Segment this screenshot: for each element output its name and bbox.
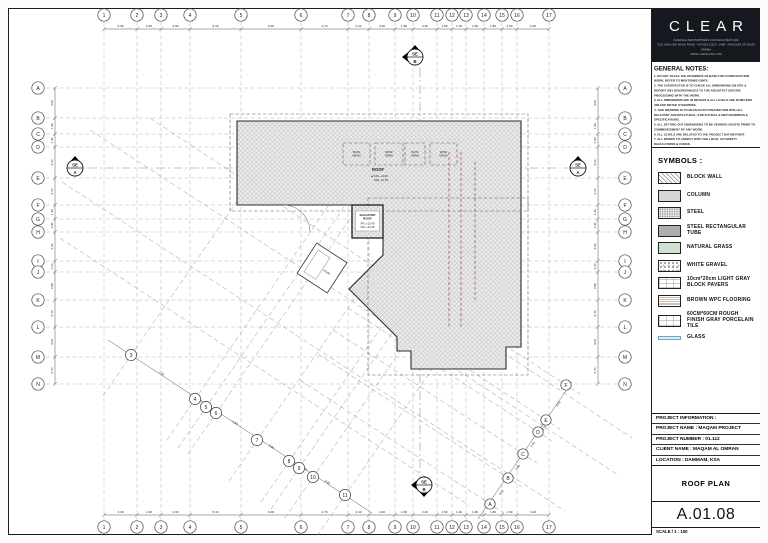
diagonal-grid-bubble: 4 — [189, 393, 200, 404]
svg-text:2.70: 2.70 — [50, 310, 54, 316]
svg-text:SE: SE — [412, 51, 418, 56]
column-grid-bubble-bottom: 15 — [496, 521, 508, 533]
block-wall-swatch — [658, 172, 681, 184]
drawing-sheet: 3.303.302.402.402.902.905.105.106.006.00… — [0, 0, 768, 543]
stair-roof: STAIR — [297, 243, 347, 293]
svg-text:15: 15 — [499, 525, 505, 531]
note-line: 3. ALL DIMENSIONS ARE IN METERS & ALL LE… — [654, 98, 756, 108]
svg-text:2.40: 2.40 — [422, 24, 428, 28]
svg-text:1: 1 — [103, 525, 106, 531]
svg-text:3.00: 3.00 — [593, 339, 597, 345]
svg-text:1.60: 1.60 — [50, 123, 54, 129]
diagonal-grid-bubble: 6 — [210, 407, 221, 418]
row-grid-bubble-left: G — [32, 213, 44, 225]
legend-item-steel-tube: STEEL RECTANGULAR TUBE — [658, 225, 754, 237]
project-info-row: PROJECT INFORMATION : — [652, 414, 760, 424]
svg-text:1.40: 1.40 — [456, 510, 462, 514]
section-marker-A: SEA — [570, 156, 586, 176]
svg-text:F: F — [36, 203, 39, 209]
svg-text:2.70: 2.70 — [593, 310, 597, 316]
svg-text:16: 16 — [514, 525, 520, 531]
svg-text:1.50: 1.50 — [506, 510, 512, 514]
svg-text:4.40: 4.40 — [379, 510, 385, 514]
diagonal-letter-bubble: D — [533, 427, 543, 437]
svg-text:D: D — [536, 430, 540, 436]
svg-text:F: F — [564, 383, 567, 389]
svg-text:2.90: 2.90 — [172, 24, 178, 28]
diagonal-letter-bubble: F — [561, 380, 571, 390]
svg-text:8: 8 — [368, 525, 371, 531]
note-line: 4. THIS DRAWING IS TO BE READ IN CONJUNC… — [654, 108, 756, 123]
svg-text:12: 12 — [449, 13, 455, 19]
row-grid-bubble-left: L — [32, 321, 44, 333]
note-line: 1. DO NOT SCALE THE DRAWINGS AS BASE FOR… — [654, 74, 756, 84]
svg-text:3.30: 3.30 — [117, 510, 123, 514]
column-grid-bubble-top: 16 — [511, 9, 523, 21]
row-grid-bubble-left: N — [32, 378, 44, 390]
svg-text:1.30: 1.30 — [593, 222, 597, 228]
note-line: 7. ALL WORKS TO COMPLY WITH THE LOCAL AU… — [654, 137, 756, 147]
column-grid-bubble-bottom: 1 — [98, 521, 110, 533]
svg-text:6.00: 6.00 — [268, 510, 274, 514]
svg-text:3.60: 3.60 — [324, 479, 331, 486]
svg-text:ROOF: ROOF — [440, 150, 448, 154]
row-grid-bubble-right: K — [619, 294, 631, 306]
svg-text:DRAIN: DRAIN — [439, 154, 447, 158]
svg-text:L: L — [37, 325, 40, 331]
row-grid-bubble-left: E — [32, 172, 44, 184]
column-grid-bubble-bottom: 5 — [235, 521, 247, 533]
row-grid-bubble-left: D — [32, 141, 44, 153]
svg-text:6: 6 — [215, 411, 218, 417]
roof-plan-drawing: 3.303.302.402.402.902.905.105.106.006.00… — [8, 8, 652, 535]
svg-text:G: G — [623, 217, 627, 223]
svg-text:2: 2 — [136, 525, 139, 531]
svg-text:D: D — [36, 145, 40, 151]
project-info-row: PROJECT NAME : MAQAM PROJECT — [652, 424, 760, 434]
svg-text:9: 9 — [394, 13, 397, 19]
svg-text:F: F — [623, 203, 626, 209]
column-grid-bubble-bottom: 8 — [363, 521, 375, 533]
column-grid-bubble-bottom: 6 — [295, 521, 307, 533]
row-grid-bubble-right: I — [619, 255, 631, 267]
column-grid-bubble-top: 9 — [389, 9, 401, 21]
svg-text:15: 15 — [499, 13, 505, 19]
diagonal-letter-bubble: C — [518, 449, 528, 459]
svg-text:C: C — [623, 132, 627, 138]
svg-text:8: 8 — [368, 13, 371, 19]
diagonal-grid-bubble: 9 — [293, 462, 304, 473]
firm-header: CLEAR ALMASAH AND PARTNERS FOR ARCHITECT… — [652, 8, 760, 62]
svg-text:5.10: 5.10 — [212, 510, 218, 514]
column-grid-bubble-top: 1 — [98, 9, 110, 21]
diagonal-letter-bubble: A — [485, 499, 495, 509]
svg-text:2.70: 2.70 — [593, 367, 597, 373]
svg-text:2.70: 2.70 — [50, 367, 54, 373]
svg-text:7.70: 7.70 — [158, 370, 165, 377]
row-grid-bubble-left: M — [32, 351, 44, 363]
svg-text:ROOF: ROOF — [411, 150, 419, 154]
column-grid-bubble-top: 17 — [543, 9, 555, 21]
note-line: 5. ALL SETTING OUT DIMENSIONS TO BE VERI… — [654, 123, 756, 133]
legend-item-natural-grass: NATURAL GRASS — [658, 242, 754, 254]
column-grid-bubble-bottom: 17 — [543, 521, 555, 533]
svg-text:8: 8 — [288, 459, 291, 465]
elevator-ffl-level: FFL +13.40 — [361, 222, 375, 226]
svg-text:2.90: 2.90 — [593, 243, 597, 249]
column-grid-bubble-top: 10 — [407, 9, 419, 21]
project-info-row: CLIENT NAME : MAQAM AL OMRAN — [652, 445, 760, 455]
row-grid-bubble-left: H — [32, 226, 44, 238]
column-grid-bubble-bottom: 2 — [131, 521, 143, 533]
column-grid-bubble-top: 13 — [460, 9, 472, 21]
note-line: 2. THE CONTRACTOR IS TO CHECK ALL DIMENS… — [654, 84, 756, 99]
svg-text:4: 4 — [194, 397, 197, 403]
svg-text:2.80: 2.80 — [593, 283, 597, 289]
column-grid-bubble-top: 5 — [235, 9, 247, 21]
row-grid-bubble-right: A — [619, 82, 631, 94]
column-grid-bubble-bottom: 3 — [155, 521, 167, 533]
sheet-number: A.01.08 — [677, 506, 736, 524]
svg-text:DRAIN: DRAIN — [411, 154, 419, 158]
svg-text:10: 10 — [410, 13, 416, 19]
title-block-sidebar: CLEAR ALMASAH AND PARTNERS FOR ARCHITECT… — [651, 8, 760, 535]
svg-text:4.70: 4.70 — [321, 510, 327, 514]
steel-swatch — [658, 207, 681, 219]
drawing-title: ROOF PLAN — [682, 479, 731, 488]
row-grid-bubble-right: N — [619, 378, 631, 390]
svg-text:L: L — [624, 325, 627, 331]
svg-text:1.50: 1.50 — [506, 24, 512, 28]
column-grid-bubble-bottom: 11 — [431, 521, 443, 533]
column-grid-bubble-bottom: 4 — [184, 521, 196, 533]
row-grid-bubble-right: C — [619, 128, 631, 140]
svg-text:2.70: 2.70 — [50, 188, 54, 194]
section-marker-B: SEB — [402, 45, 423, 65]
elevator-roof: ELEVATOR ROOF FFL +13.40 SSL +13.25 — [352, 205, 383, 238]
svg-text:10: 10 — [410, 525, 416, 531]
svg-text:M: M — [623, 355, 627, 361]
svg-text:13: 13 — [463, 525, 469, 531]
diagonal-grid-bubble: 5 — [200, 401, 211, 412]
row-grid-bubble-right: F — [619, 199, 631, 211]
svg-text:3.00: 3.00 — [593, 100, 597, 106]
svg-text:11: 11 — [434, 13, 439, 19]
legend-item-block-pavers: 10cm*20cm LIGHT GRAY BLOCK PAVERS — [658, 277, 754, 289]
svg-text:1: 1 — [103, 13, 106, 19]
column-grid-bubble-top: 12 — [446, 9, 458, 21]
steel-tube-swatch — [658, 225, 681, 237]
svg-text:I: I — [624, 259, 625, 265]
svg-text:1.80: 1.80 — [490, 510, 496, 514]
svg-text:7: 7 — [256, 438, 259, 444]
sheet-number-box: A.01.08 — [652, 502, 760, 528]
svg-text:ROOF: ROOF — [385, 150, 393, 154]
svg-text:N: N — [623, 382, 627, 388]
svg-text:1.50: 1.50 — [441, 24, 447, 28]
svg-text:3: 3 — [160, 13, 163, 19]
svg-text:2: 2 — [136, 13, 139, 19]
column-grid-bubble-top: 15 — [496, 9, 508, 21]
column-grid-bubble-top: 8 — [363, 9, 375, 21]
svg-text:3: 3 — [130, 353, 133, 359]
column-grid-bubble-top: 6 — [295, 9, 307, 21]
roof-ssl-level: SSL +9.75 — [374, 178, 388, 182]
svg-text:3.10: 3.10 — [593, 159, 597, 165]
glass-swatch — [658, 336, 681, 340]
svg-text:1.30: 1.30 — [50, 137, 54, 143]
general-notes: GENERAL NOTES: 1. DO NOT SCALE THE DRAWI… — [652, 62, 760, 148]
column-grid-bubble-top: 14 — [478, 9, 490, 21]
wpc-swatch — [658, 295, 681, 307]
project-info-row: PROJECT NUMBER : 01.112 — [652, 435, 760, 445]
svg-text:H: H — [36, 230, 40, 236]
svg-text:7: 7 — [347, 13, 350, 19]
legend-item-wpc-flooring: BROWN WPC FLOORING — [658, 295, 754, 307]
svg-text:SE: SE — [421, 479, 427, 484]
svg-text:2.40: 2.40 — [529, 441, 536, 448]
row-grid-bubble-left: A — [32, 82, 44, 94]
legend-item-glass: GLASS — [658, 335, 754, 341]
roof-slab — [237, 121, 521, 369]
legend-item-white-gravel: WHITE GRAVEL — [658, 260, 754, 272]
svg-text:5.10: 5.10 — [212, 24, 218, 28]
project-information: PROJECT INFORMATION : PROJECT NAME : MAQ… — [652, 414, 760, 466]
svg-text:3.00: 3.00 — [50, 100, 54, 106]
svg-text:14: 14 — [481, 13, 487, 19]
row-grid-bubble-right: B — [619, 112, 631, 124]
svg-text:4: 4 — [189, 13, 192, 19]
svg-text:A: A — [73, 170, 76, 175]
elevator-ssl-level: SSL +13.25 — [360, 225, 375, 229]
svg-text:DRAIN: DRAIN — [385, 154, 393, 158]
svg-text:ROOF: ROOF — [353, 150, 361, 154]
column-grid-bubble-bottom: 9 — [389, 521, 401, 533]
svg-text:4.40: 4.40 — [379, 24, 385, 28]
svg-text:I: I — [37, 259, 38, 265]
symbols-legend: SYMBOLS : BLOCK WALL COLUMN STEEL STEEL … — [652, 148, 760, 414]
svg-text:1.60: 1.60 — [593, 123, 597, 129]
diagonal-grid-bubble: 10 — [307, 471, 318, 482]
section-marker-B: SEB — [411, 477, 432, 497]
svg-text:H: H — [623, 230, 627, 236]
svg-text:3.10: 3.10 — [498, 489, 505, 496]
column-grid-bubble-top: 4 — [184, 9, 196, 21]
svg-text:6: 6 — [300, 525, 303, 531]
row-grid-bubble-right: G — [619, 213, 631, 225]
svg-text:SE: SE — [72, 162, 78, 167]
svg-text:13: 13 — [463, 13, 469, 19]
svg-text:3.10: 3.10 — [50, 159, 54, 165]
svg-text:5: 5 — [205, 405, 208, 411]
svg-text:A: A — [576, 170, 579, 175]
row-grid-bubble-left: K — [32, 294, 44, 306]
svg-text:17: 17 — [546, 525, 552, 531]
svg-text:B: B — [413, 59, 416, 64]
column-grid-bubble-bottom: 10 — [407, 521, 419, 533]
legend-item-porcelain-tile: 60CM*60CM ROUGH FINISH GRAY PORCELAIN TI… — [658, 312, 754, 329]
svg-text:4.00: 4.00 — [555, 400, 562, 407]
svg-text:1.10: 1.10 — [593, 263, 597, 269]
svg-text:B: B — [422, 487, 425, 492]
svg-text:6: 6 — [300, 13, 303, 19]
column-grid-bubble-top: 2 — [131, 9, 143, 21]
row-grid-bubble-right: H — [619, 226, 631, 238]
firm-logo: CLEAR — [652, 18, 760, 35]
svg-text:1.80: 1.80 — [401, 510, 407, 514]
svg-text:D: D — [623, 145, 627, 151]
column-grid-bubble-bottom: 7 — [342, 521, 354, 533]
svg-text:14: 14 — [481, 525, 487, 531]
svg-text:5: 5 — [240, 13, 243, 19]
svg-text:N: N — [36, 382, 40, 388]
legend-item-column: COLUMN — [658, 190, 754, 202]
row-grid-bubble-right: J — [619, 266, 631, 278]
svg-text:1.30: 1.30 — [593, 137, 597, 143]
svg-text:1.80: 1.80 — [490, 24, 496, 28]
svg-text:2.90: 2.90 — [50, 243, 54, 249]
section-marker-A: SEA — [67, 156, 83, 176]
drawing-title-box: ROOF PLAN — [652, 466, 760, 502]
scale-text: SCALE / 1 : 100 — [656, 529, 688, 534]
legend-item-block-wall: BLOCK WALL — [658, 172, 754, 184]
svg-text:C: C — [36, 132, 40, 138]
legend-item-steel: STEEL — [658, 207, 754, 219]
row-grid-bubble-right: L — [619, 321, 631, 333]
column-grid-bubble-bottom: 13 — [460, 521, 472, 533]
svg-text:3.20: 3.20 — [530, 510, 536, 514]
diagonal-letter-bubble: B — [503, 473, 513, 483]
row-grid-bubble-left: J — [32, 266, 44, 278]
column-grid-bubble-top: 3 — [155, 9, 167, 21]
diagonal-grid-bubble: 11 — [339, 489, 350, 500]
svg-text:17: 17 — [546, 13, 552, 19]
row-grid-bubble-right: M — [619, 351, 631, 363]
svg-text:3.30: 3.30 — [117, 24, 123, 28]
diagonal-grid-bubble: 3 — [125, 349, 136, 360]
svg-text:6.00: 6.00 — [268, 24, 274, 28]
scale-box: SCALE / 1 : 100 — [652, 528, 760, 535]
svg-text:4: 4 — [189, 525, 192, 531]
svg-text:2.70: 2.70 — [593, 188, 597, 194]
svg-text:9: 9 — [298, 466, 301, 472]
grass-swatch — [658, 242, 681, 254]
svg-text:1.80: 1.80 — [472, 24, 478, 28]
diagonal-grid-bubble: 8 — [283, 455, 294, 466]
column-grid-bubble-bottom: 12 — [446, 521, 458, 533]
svg-text:1.80: 1.80 — [401, 24, 407, 28]
svg-text:7: 7 — [347, 525, 350, 531]
row-grid-bubble-right: D — [619, 141, 631, 153]
svg-text:1.80: 1.80 — [472, 510, 478, 514]
column-grid-bubble-top: 7 — [342, 9, 354, 21]
svg-text:1.50: 1.50 — [441, 510, 447, 514]
pavers-swatch — [658, 277, 681, 289]
column-grid-bubble-bottom: 16 — [511, 521, 523, 533]
diagonal-grid-bubble: 7 — [251, 434, 262, 445]
svg-text:11: 11 — [434, 525, 439, 531]
diagonal-letter-bubble: E — [541, 415, 551, 425]
svg-text:2.40: 2.40 — [146, 24, 152, 28]
svg-text:1.40: 1.40 — [50, 209, 54, 215]
svg-text:1.30: 1.30 — [50, 222, 54, 228]
row-grid-bubble-right: E — [619, 172, 631, 184]
svg-text:M: M — [36, 355, 40, 361]
column-grid-bubble-bottom: 14 — [478, 521, 490, 533]
svg-text:G: G — [36, 217, 40, 223]
row-grid-bubble-left: I — [32, 255, 44, 267]
svg-text:2.80: 2.80 — [50, 283, 54, 289]
column-grid-bubble-top: 11 — [431, 9, 443, 21]
gravel-swatch — [658, 260, 681, 272]
project-info-row: LOCATION : DAMMAM, KSA — [652, 456, 760, 466]
row-grid-bubble-left: B — [32, 112, 44, 124]
row-grid-bubble-left: F — [32, 199, 44, 211]
svg-text:ROOF: ROOF — [372, 167, 385, 172]
svg-text:1.40: 1.40 — [593, 209, 597, 215]
svg-text:2.40: 2.40 — [146, 510, 152, 514]
svg-text:1.10: 1.10 — [50, 263, 54, 269]
row-grid-bubble-left: C — [32, 128, 44, 140]
firm-address: ALMASAH AND PARTNERS FOR ARCHITECTURE 75… — [654, 38, 758, 57]
svg-text:ROOF: ROOF — [363, 217, 372, 221]
svg-text:5: 5 — [240, 525, 243, 531]
general-notes-title: GENERAL NOTES: — [654, 65, 756, 72]
svg-text:1.40: 1.40 — [456, 24, 462, 28]
svg-text:10: 10 — [310, 475, 316, 481]
svg-text:16: 16 — [514, 13, 520, 19]
svg-text:3: 3 — [160, 525, 163, 531]
tile-swatch — [658, 315, 681, 327]
svg-text:SE: SE — [575, 162, 581, 167]
svg-text:4.70: 4.70 — [321, 24, 327, 28]
svg-text:9: 9 — [394, 525, 397, 531]
svg-text:3.20: 3.20 — [530, 24, 536, 28]
svg-text:DRAIN: DRAIN — [352, 154, 360, 158]
svg-text:2.10: 2.10 — [355, 510, 361, 514]
svg-text:11: 11 — [342, 493, 347, 499]
svg-text:2.10: 2.10 — [355, 24, 361, 28]
symbols-title: SYMBOLS : — [658, 156, 754, 165]
svg-text:12: 12 — [449, 525, 455, 531]
svg-text:2.40: 2.40 — [422, 510, 428, 514]
svg-text:C: C — [521, 452, 525, 458]
column-swatch — [658, 190, 681, 202]
svg-text:3.00: 3.00 — [50, 339, 54, 345]
svg-text:2.90: 2.90 — [172, 510, 178, 514]
